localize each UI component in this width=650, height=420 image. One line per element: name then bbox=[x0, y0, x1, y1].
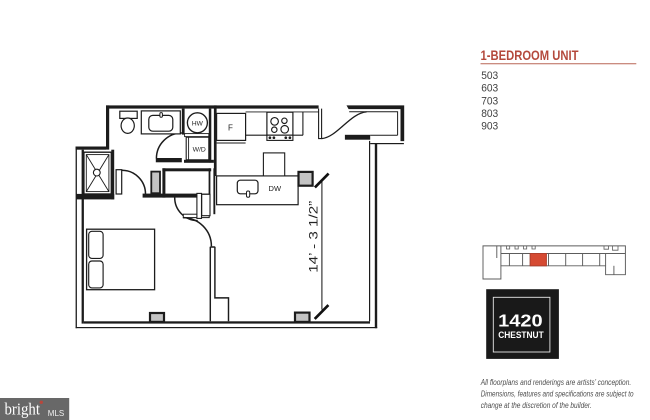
svg-text:Dimensions, features and speci: Dimensions, features and specifications … bbox=[481, 389, 634, 399]
svg-text:MLS: MLS bbox=[48, 409, 65, 418]
svg-text:bright: bright bbox=[5, 400, 41, 419]
svg-text:803: 803 bbox=[481, 108, 498, 120]
svg-text:CHESTNUT: CHESTNUT bbox=[498, 330, 544, 340]
svg-text:14’ - 3 1/2”: 14’ - 3 1/2” bbox=[309, 201, 321, 273]
svg-text:change at the discretion of th: change at the discretion of the builder. bbox=[481, 400, 592, 410]
svg-text:All floorplans and renderings: All floorplans and renderings are artist… bbox=[480, 377, 631, 387]
svg-text:703: 703 bbox=[481, 95, 498, 107]
svg-text:W/D: W/D bbox=[193, 147, 206, 154]
svg-text:603: 603 bbox=[481, 83, 498, 95]
svg-text:HW: HW bbox=[192, 120, 204, 127]
svg-text:1-BEDROOM UNIT: 1-BEDROOM UNIT bbox=[481, 48, 580, 63]
svg-text:DW: DW bbox=[269, 184, 282, 193]
svg-text:903: 903 bbox=[481, 121, 498, 133]
svg-text:1420: 1420 bbox=[498, 311, 543, 331]
svg-text:503: 503 bbox=[481, 70, 498, 82]
svg-text:F: F bbox=[228, 124, 233, 133]
